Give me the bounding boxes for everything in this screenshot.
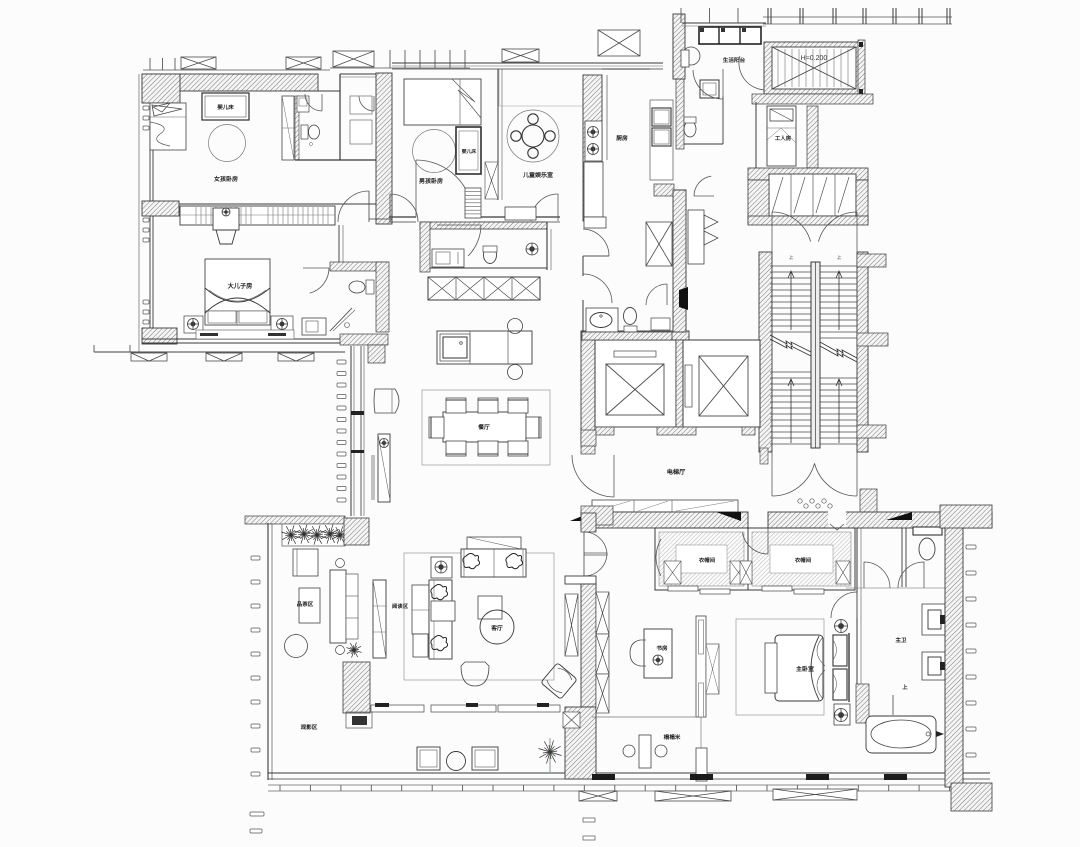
svg-text:大儿子房: 大儿子房 [228, 282, 253, 290]
svg-text:电梯厅: 电梯厅 [667, 468, 686, 476]
svg-text:阅读区: 阅读区 [392, 603, 409, 610]
svg-text:榻榻米: 榻榻米 [663, 734, 681, 741]
svg-text:儿童娱乐室: 儿童娱乐室 [522, 171, 553, 179]
svg-text:主卧室: 主卧室 [796, 665, 814, 673]
svg-text:上: 上 [837, 255, 842, 260]
svg-text:观影区: 观影区 [300, 724, 318, 731]
svg-text:衣帽间: 衣帽间 [699, 557, 716, 564]
svg-text:衣帽间: 衣帽间 [795, 557, 812, 564]
svg-text:工人房: 工人房 [775, 135, 792, 142]
svg-text:上: 上 [902, 684, 908, 691]
svg-text:书房: 书房 [656, 645, 668, 652]
svg-text:男孩卧房: 男孩卧房 [419, 177, 443, 185]
svg-text:上: 上 [789, 255, 794, 260]
svg-text:品茶区: 品茶区 [297, 601, 314, 608]
svg-text:厨房: 厨房 [616, 134, 628, 142]
svg-text:主卫: 主卫 [895, 637, 907, 644]
svg-text:生活阳台: 生活阳台 [723, 57, 746, 64]
svg-text:餐厅: 餐厅 [477, 424, 490, 431]
svg-text:女孩卧房: 女孩卧房 [214, 175, 238, 183]
svg-text:客厅: 客厅 [490, 624, 503, 632]
svg-text:婴儿床: 婴儿床 [217, 104, 234, 111]
svg-text:婴儿床: 婴儿床 [462, 148, 477, 155]
svg-text:H=0.200: H=0.200 [801, 55, 828, 62]
